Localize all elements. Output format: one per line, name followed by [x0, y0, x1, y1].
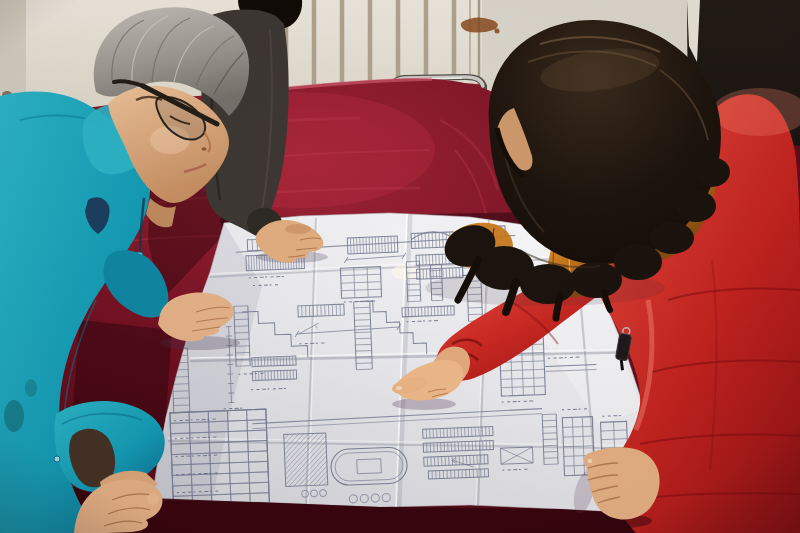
photo-blueprint-meeting: [0, 0, 800, 533]
vignette: [0, 0, 800, 533]
